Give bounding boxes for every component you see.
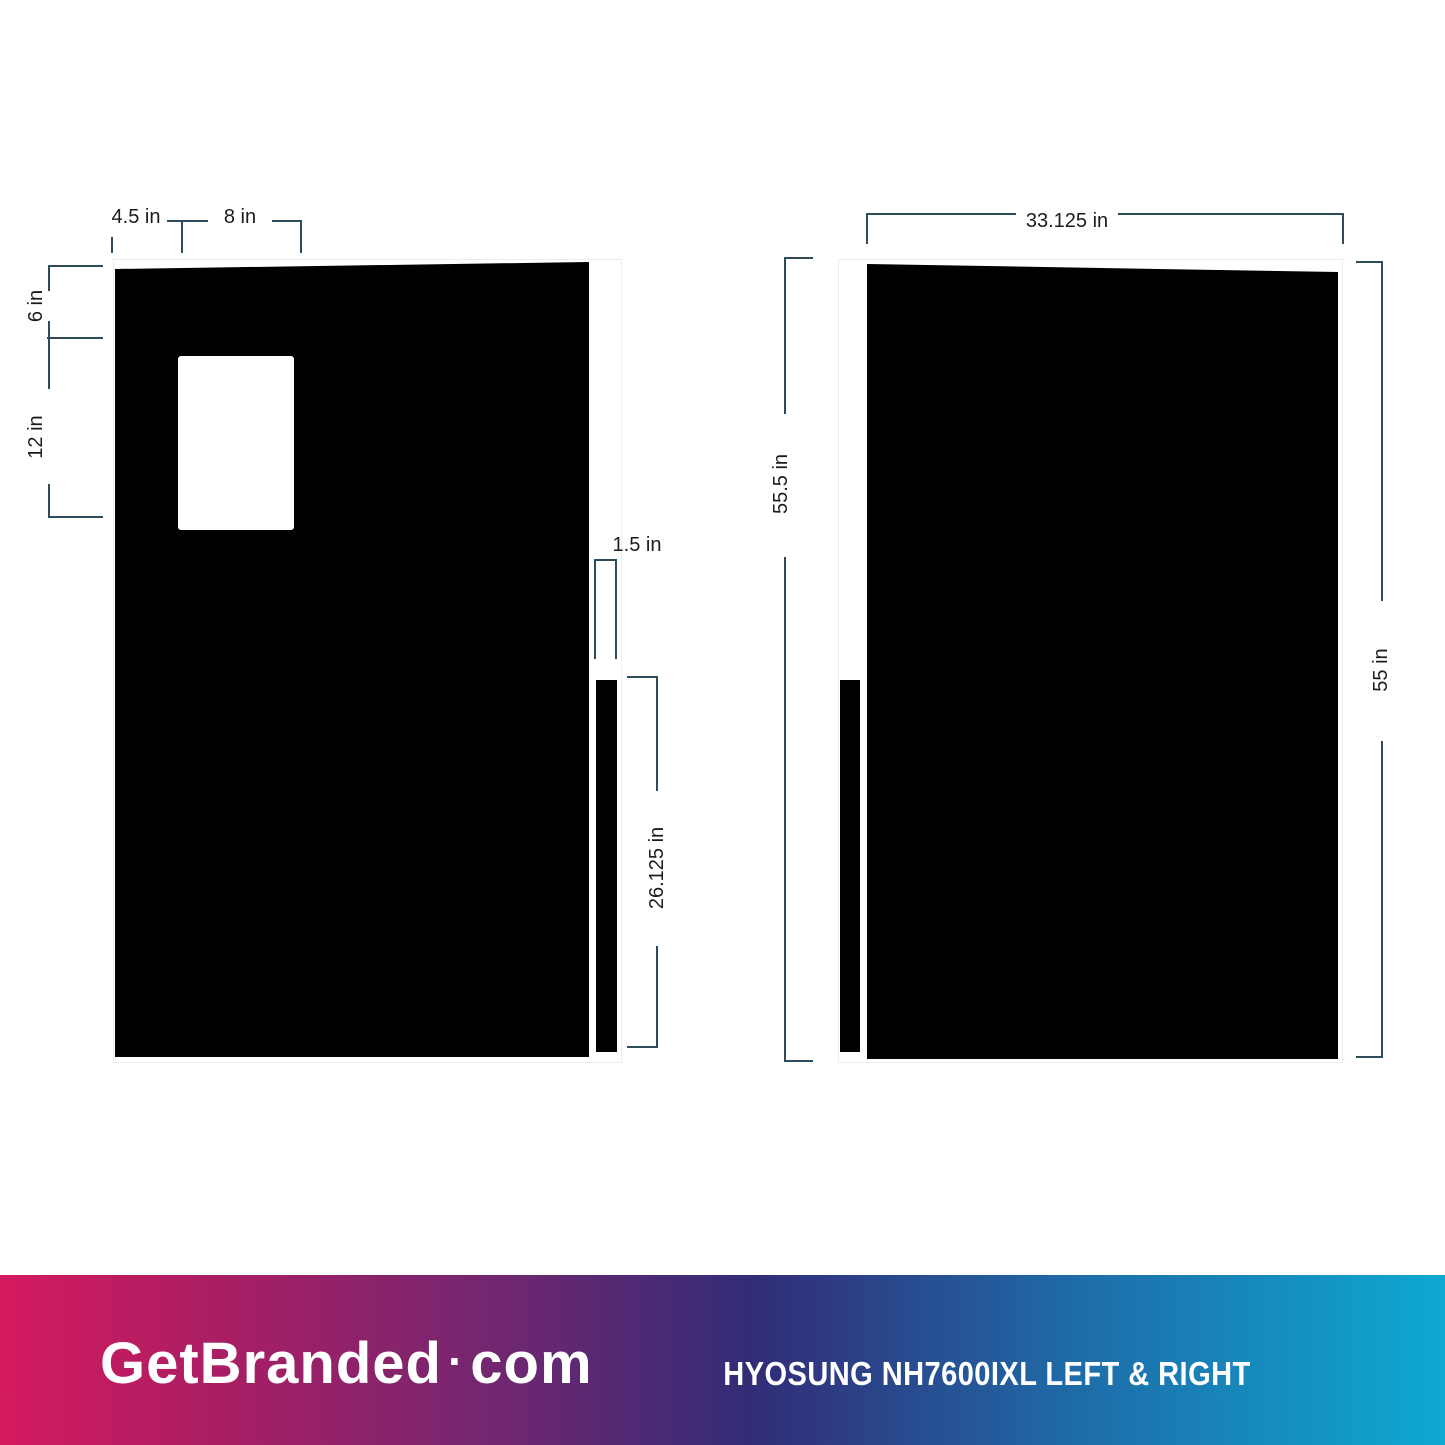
dim-line bbox=[866, 213, 1016, 215]
dim-line bbox=[1381, 741, 1383, 1058]
dim-label-33-125-in: 33.125 in bbox=[1007, 208, 1127, 234]
dim-line bbox=[627, 1046, 658, 1048]
dim-line bbox=[784, 557, 786, 1062]
right-side-strip bbox=[840, 680, 860, 1052]
dim-line bbox=[594, 559, 596, 659]
dim-line bbox=[48, 321, 50, 338]
dim-line bbox=[627, 676, 658, 678]
dim-line bbox=[786, 1060, 813, 1062]
dim-line bbox=[48, 516, 103, 518]
template-diagram-canvas: 4.5 in 8 in 6 in 12 in 1.5 in 26.125 in … bbox=[0, 0, 1445, 1445]
dim-tick bbox=[181, 220, 183, 253]
left-side-strip bbox=[596, 680, 617, 1052]
left-panel-cutout bbox=[178, 356, 294, 530]
dim-line bbox=[615, 559, 617, 659]
dim-line bbox=[167, 220, 208, 222]
dim-line bbox=[786, 257, 813, 259]
dim-line bbox=[272, 220, 302, 222]
brand-dot: · bbox=[442, 1334, 470, 1388]
dim-line bbox=[656, 676, 658, 791]
dim-label-4-5-in: 4.5 in bbox=[100, 204, 172, 230]
dim-line bbox=[1118, 213, 1344, 215]
dim-tick bbox=[1342, 213, 1344, 244]
dim-tick bbox=[866, 213, 868, 244]
dim-label-55-5-in: 55.5 in bbox=[768, 414, 794, 554]
product-label: HYOSUNG NH7600IXL LEFT & RIGHT bbox=[697, 1352, 1278, 1396]
dim-line bbox=[1381, 261, 1383, 601]
dim-label-55-in: 55 in bbox=[1368, 600, 1394, 740]
dim-line bbox=[1356, 1056, 1383, 1058]
dim-label-8-in: 8 in bbox=[212, 204, 268, 230]
footer-gradient-bar: GetBranded·com HYOSUNG NH7600IXL LEFT & … bbox=[0, 1275, 1445, 1445]
dim-tick bbox=[111, 237, 113, 253]
dim-line bbox=[594, 559, 617, 561]
brand-name: GetBranded bbox=[100, 1330, 442, 1397]
dim-line bbox=[48, 484, 50, 517]
brand-tld: com bbox=[470, 1330, 592, 1397]
dim-label-6-in: 6 in bbox=[23, 236, 49, 376]
dim-label-26-125-in: 26.125 in bbox=[644, 788, 670, 948]
dim-label-1-5-in: 1.5 in bbox=[601, 532, 673, 558]
dim-line bbox=[656, 946, 658, 1048]
dim-line bbox=[1356, 261, 1383, 263]
dim-tick bbox=[300, 220, 302, 253]
brand-logo: GetBranded·com bbox=[100, 1327, 593, 1399]
dim-label-12-in: 12 in bbox=[23, 367, 49, 507]
dim-line bbox=[47, 337, 103, 339]
dim-line bbox=[784, 257, 786, 414]
dim-line bbox=[49, 265, 103, 267]
right-panel-shape bbox=[867, 263, 1338, 1059]
